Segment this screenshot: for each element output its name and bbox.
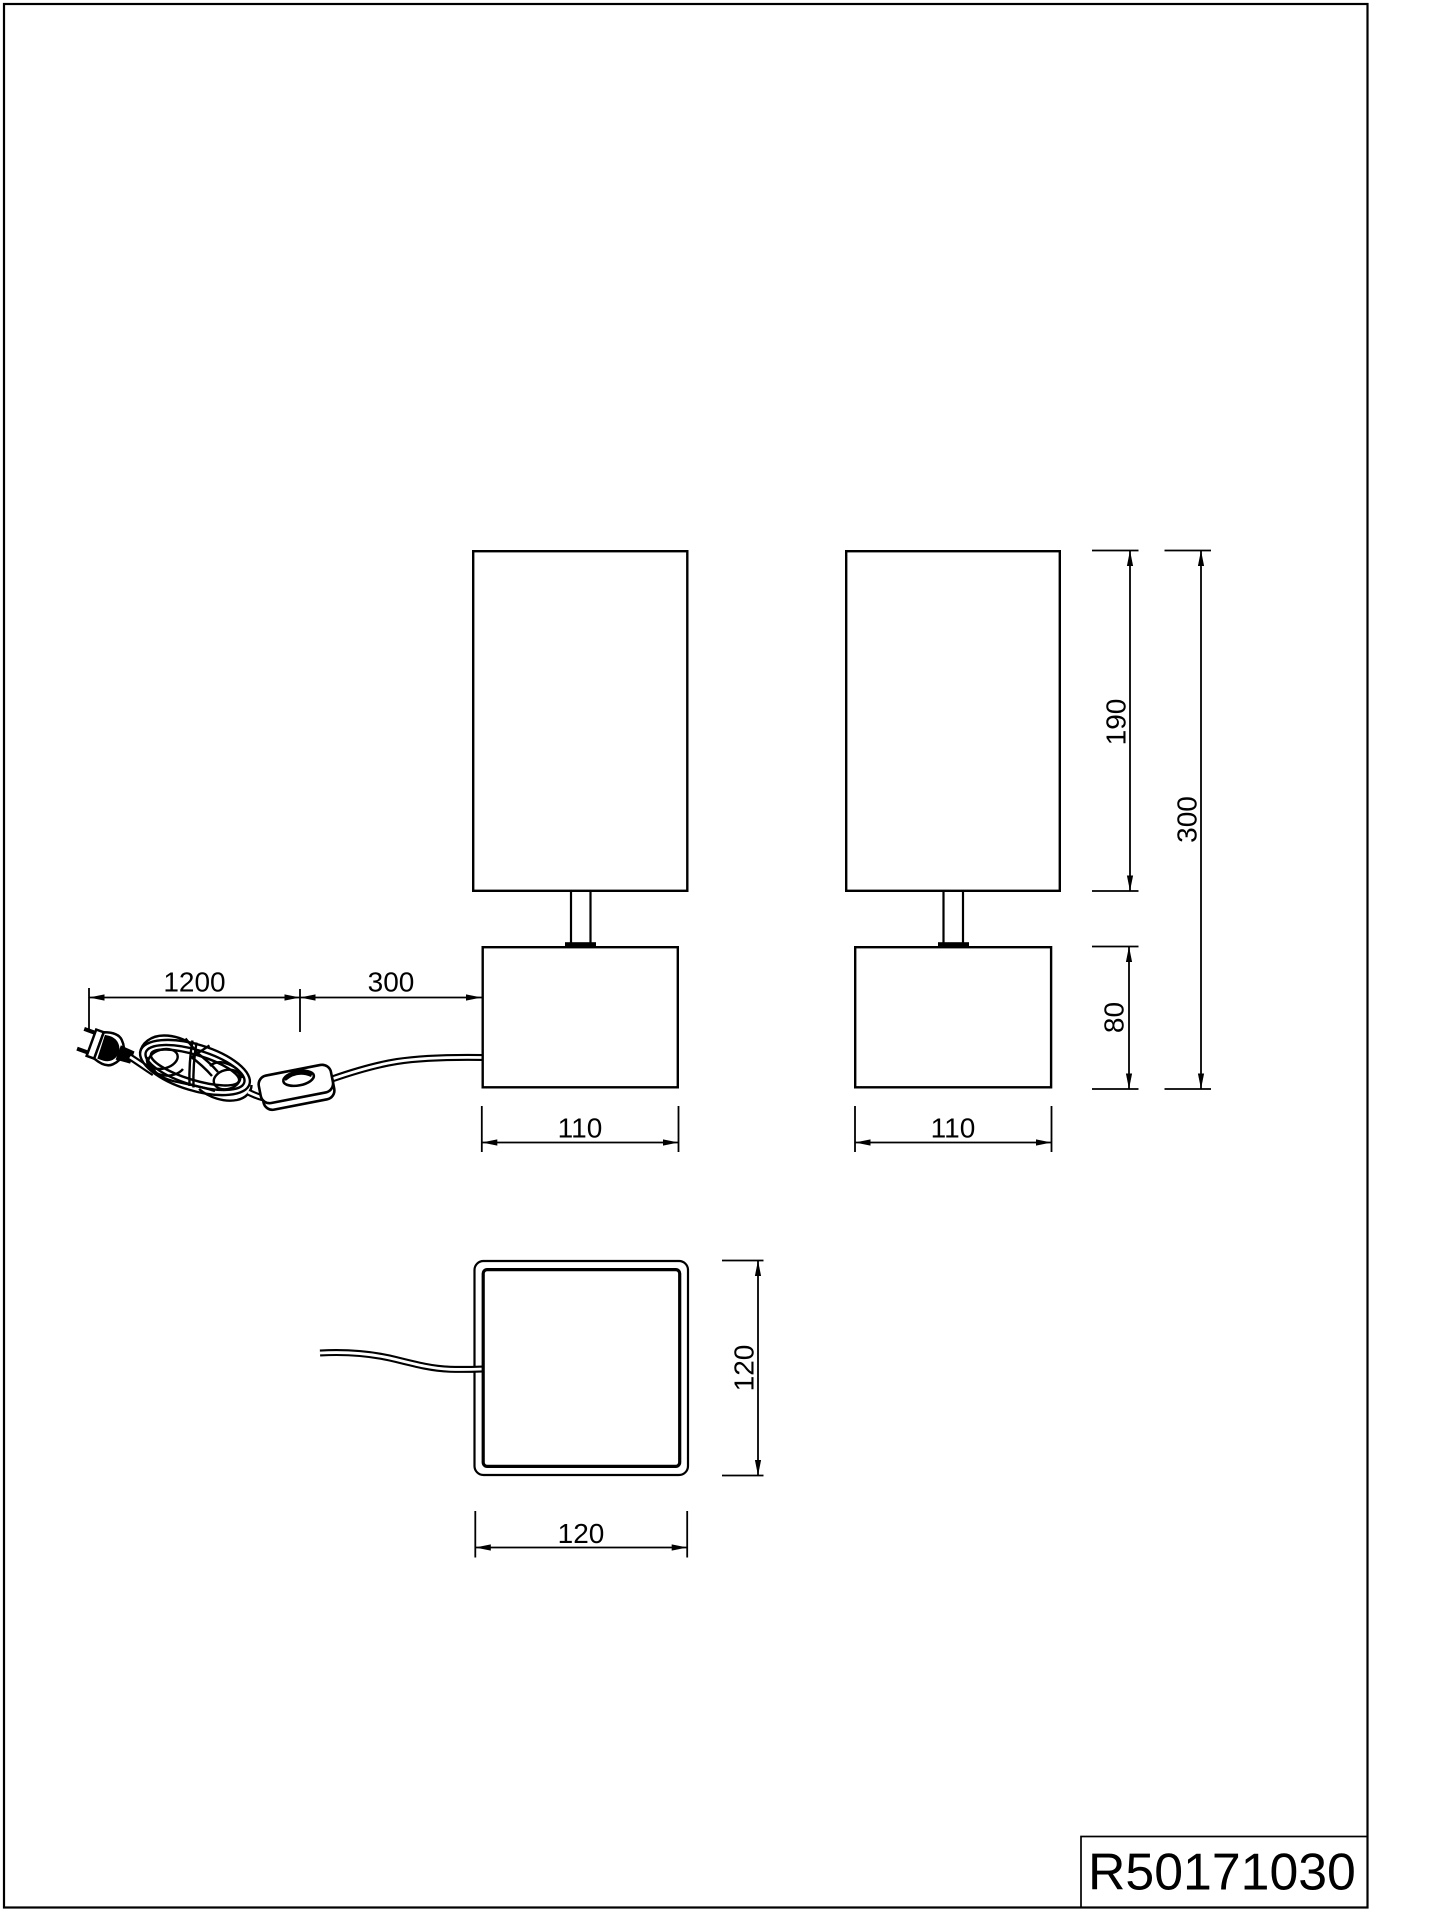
svg-text:190: 190 [1101, 699, 1132, 746]
svg-text:110: 110 [558, 1113, 603, 1144]
svg-text:1200: 1200 [163, 967, 225, 998]
svg-text:80: 80 [1099, 1002, 1130, 1033]
svg-text:300: 300 [1171, 796, 1202, 843]
svg-text:110: 110 [931, 1113, 976, 1144]
svg-text:R50171030: R50171030 [1088, 1843, 1356, 1901]
svg-text:120: 120 [729, 1345, 760, 1392]
svg-text:300: 300 [368, 967, 415, 998]
svg-text:120: 120 [558, 1518, 605, 1549]
